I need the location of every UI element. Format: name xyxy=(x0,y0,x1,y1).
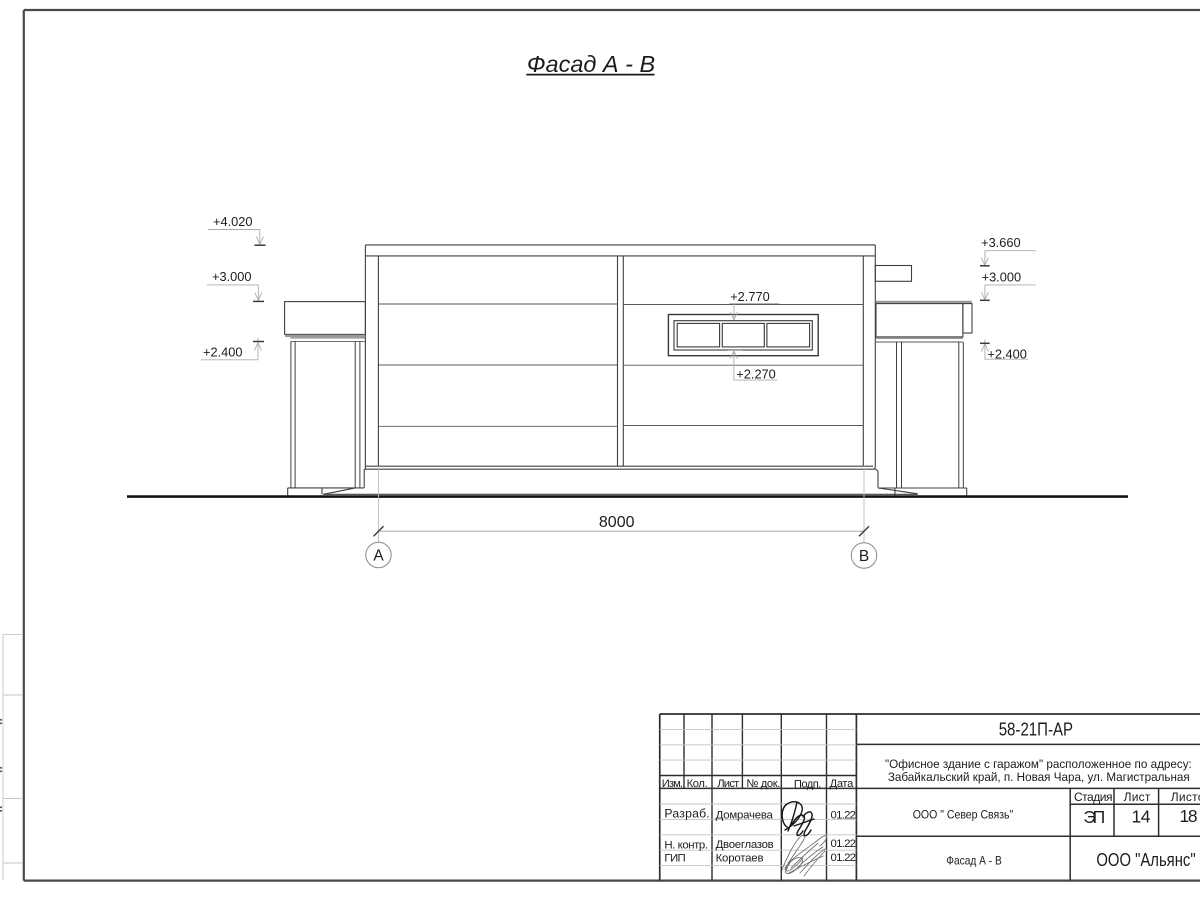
svg-text:14: 14 xyxy=(1132,806,1151,826)
svg-text:"Офисное здание с гаражом" рас: "Офисное здание с гаражом" расположенное… xyxy=(885,757,1192,771)
svg-text:ООО " Север Связь": ООО " Север Связь" xyxy=(913,808,1014,822)
svg-text:Листов: Листов xyxy=(1171,790,1200,804)
svg-text:Двоеглазов: Двоеглазов xyxy=(716,839,774,851)
svg-text:Фасад А - В: Фасад А - В xyxy=(946,854,1002,868)
svg-text:ЭП: ЭП xyxy=(1083,807,1105,827)
svg-text:Дата: Дата xyxy=(830,778,854,790)
svg-text:58-21П-АР: 58-21П-АР xyxy=(999,719,1073,739)
svg-text:№ док.: № док. xyxy=(746,778,780,790)
svg-text:В: В xyxy=(859,548,869,565)
svg-text:Подп.: Подп. xyxy=(794,779,821,791)
svg-text:+3.660: +3.660 xyxy=(981,235,1021,250)
svg-text:+2.400: +2.400 xyxy=(203,345,243,360)
svg-text:Коротаев: Коротаев xyxy=(716,852,764,864)
svg-text:ООО "Альянс": ООО "Альянс" xyxy=(1096,850,1195,870)
svg-text:Изм.: Изм. xyxy=(662,778,683,790)
svg-text:01.22: 01.22 xyxy=(831,838,857,850)
svg-text:+2.270: +2.270 xyxy=(736,367,776,382)
svg-text:ГИП: ГИП xyxy=(664,852,685,864)
svg-text:Забайкальский край, п. Новая Ч: Забайкальский край, п. Новая Чара, ул. М… xyxy=(888,770,1190,784)
svg-text:Лист: Лист xyxy=(717,778,739,790)
svg-text:Домрачева: Домрачева xyxy=(716,810,774,822)
svg-text:01.22: 01.22 xyxy=(831,852,857,864)
svg-text:Разраб.: Разраб. xyxy=(664,807,709,821)
svg-text:+3.000: +3.000 xyxy=(982,269,1022,284)
svg-text:А: А xyxy=(373,548,384,565)
svg-text:Фасад А - В: Фасад А - В xyxy=(527,51,655,77)
svg-text:+3.000: +3.000 xyxy=(212,269,252,284)
svg-text:Кол.: Кол. xyxy=(687,778,708,790)
svg-text:Стадия: Стадия xyxy=(1074,790,1113,804)
svg-text:01.22: 01.22 xyxy=(831,810,857,822)
svg-text:+4.020: +4.020 xyxy=(213,214,253,229)
svg-text:Н. контр.: Н. контр. xyxy=(664,840,708,852)
svg-text:18: 18 xyxy=(1180,806,1198,826)
svg-text:Лист: Лист xyxy=(1124,790,1151,804)
svg-text:8000: 8000 xyxy=(599,514,635,531)
svg-text:+2.770: +2.770 xyxy=(730,289,770,304)
